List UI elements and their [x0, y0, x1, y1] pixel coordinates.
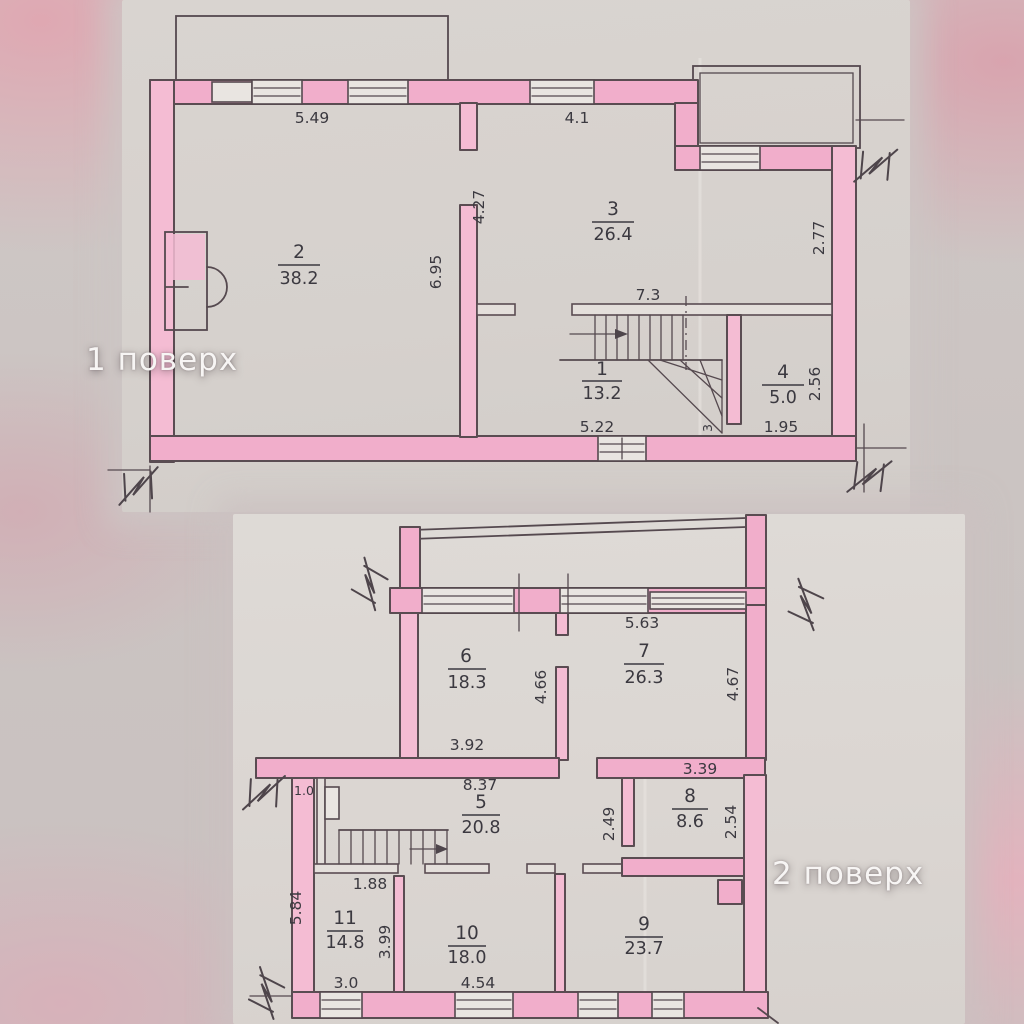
- svg-text:8: 8: [684, 786, 696, 807]
- dim-7-3: 7.3: [636, 286, 661, 304]
- chimney: [718, 880, 742, 904]
- dim-1-95: 1.95: [764, 418, 799, 436]
- door-panel: [325, 787, 339, 819]
- dim-5-22: 5.22: [580, 418, 615, 436]
- window: [212, 82, 252, 102]
- window: [578, 992, 618, 1018]
- svg-text:23.7: 23.7: [625, 939, 664, 959]
- room-8-label: 8 8.6: [672, 786, 708, 832]
- room-7-label: 7 26.3: [624, 641, 664, 688]
- floor2-label: 2 поверх: [772, 856, 924, 892]
- dim-2-49: 2.49: [600, 807, 618, 842]
- svg-text:26.4: 26.4: [594, 225, 633, 245]
- room-3-label: 3 26.4: [592, 199, 634, 245]
- window: [252, 80, 302, 104]
- dim-1-88: 1.88: [353, 875, 388, 893]
- floor1-walls: [150, 80, 856, 462]
- floorplan-photo-collage: 5.49 4.1 4.27 6.95 2.77 7.3 2.56 5.22 1.…: [0, 0, 1024, 1024]
- floor2-drawing: 5.63 4.66 4.67 3.92 1.0 8.37 3.39 2.49 2…: [0, 512, 1024, 1024]
- room-9-label: 9 23.7: [625, 914, 664, 959]
- dim-5-63: 5.63: [625, 614, 660, 632]
- svg-text:7: 7: [638, 641, 650, 662]
- room-2-label: 2 38.2: [278, 242, 320, 289]
- dim-1-0: 1.0: [294, 783, 314, 798]
- svg-text:18.0: 18.0: [448, 948, 487, 968]
- dim-2-77: 2.77: [810, 221, 828, 256]
- balcony-outline: [693, 66, 904, 148]
- dim-4-27: 4.27: [470, 190, 488, 225]
- dim-3-39: 3.39: [683, 760, 718, 778]
- svg-text:3: 3: [607, 199, 619, 220]
- dim-4-54: 4.54: [461, 974, 496, 992]
- room-1-label: 1 13.2: [582, 359, 622, 404]
- svg-text:14.8: 14.8: [326, 933, 365, 953]
- dim-3-0: 3.0: [334, 974, 359, 992]
- svg-text:4: 4: [777, 362, 789, 383]
- floor2-labels: 5.63 4.66 4.67 3.92 1.0 8.37 3.39 2.49 2…: [287, 614, 742, 992]
- svg-text:2: 2: [293, 242, 305, 263]
- stairs-direction-arrow: [436, 844, 448, 854]
- window: [598, 436, 646, 461]
- room-6-label: 6 18.3: [448, 646, 487, 693]
- dim-2-54: 2.54: [722, 805, 740, 840]
- dim-5-84: 5.84: [287, 891, 305, 926]
- svg-text:11: 11: [333, 908, 357, 929]
- svg-text:13.2: 13.2: [583, 384, 622, 404]
- dim-4-66: 4.66: [532, 670, 550, 705]
- room-11-label: 11 14.8: [326, 908, 365, 953]
- window: [320, 992, 362, 1018]
- dim-2-56: 2.56: [806, 367, 824, 402]
- floor1-label: 1 поверх: [86, 342, 238, 378]
- svg-text:38.2: 38.2: [280, 269, 319, 289]
- svg-text:1: 1: [596, 359, 608, 380]
- window: [530, 80, 594, 104]
- dim-4-67: 4.67: [724, 667, 742, 702]
- floor1-drawing: 5.49 4.1 4.27 6.95 2.77 7.3 2.56 5.22 1.…: [0, 0, 1024, 515]
- svg-text:20.8: 20.8: [462, 818, 501, 838]
- svg-text:26.3: 26.3: [625, 668, 664, 688]
- window: [455, 992, 513, 1018]
- room-5-label: 5 20.8: [462, 792, 501, 838]
- svg-text:5.0: 5.0: [769, 388, 797, 408]
- dim-6-95: 6.95: [427, 255, 445, 290]
- svg-text:6: 6: [460, 646, 472, 667]
- dim-3-99: 3.99: [376, 925, 394, 960]
- window: [348, 80, 408, 104]
- window: [560, 588, 648, 613]
- terrace-outline: [412, 518, 746, 539]
- svg-text:10: 10: [455, 923, 479, 944]
- window: [650, 592, 746, 609]
- svg-text:9: 9: [638, 914, 650, 935]
- porch-outline: [176, 16, 448, 82]
- svg-text:8.6: 8.6: [676, 812, 704, 832]
- window: [652, 992, 684, 1018]
- svg-text:18.3: 18.3: [448, 673, 487, 693]
- window: [700, 146, 760, 170]
- staircase-floor1: [560, 296, 722, 433]
- room-10-label: 10 18.0: [448, 923, 487, 968]
- dim-5-49: 5.49: [295, 109, 330, 127]
- dim-3: 3: [700, 424, 715, 432]
- window: [422, 588, 514, 613]
- dim-4-1: 4.1: [565, 109, 590, 127]
- dim-3-92: 3.92: [450, 736, 485, 754]
- svg-text:5: 5: [475, 792, 487, 813]
- staircase-floor2: [339, 830, 448, 864]
- stairs-direction-arrow: [615, 329, 628, 339]
- room-4-label: 4 5.0: [762, 362, 804, 408]
